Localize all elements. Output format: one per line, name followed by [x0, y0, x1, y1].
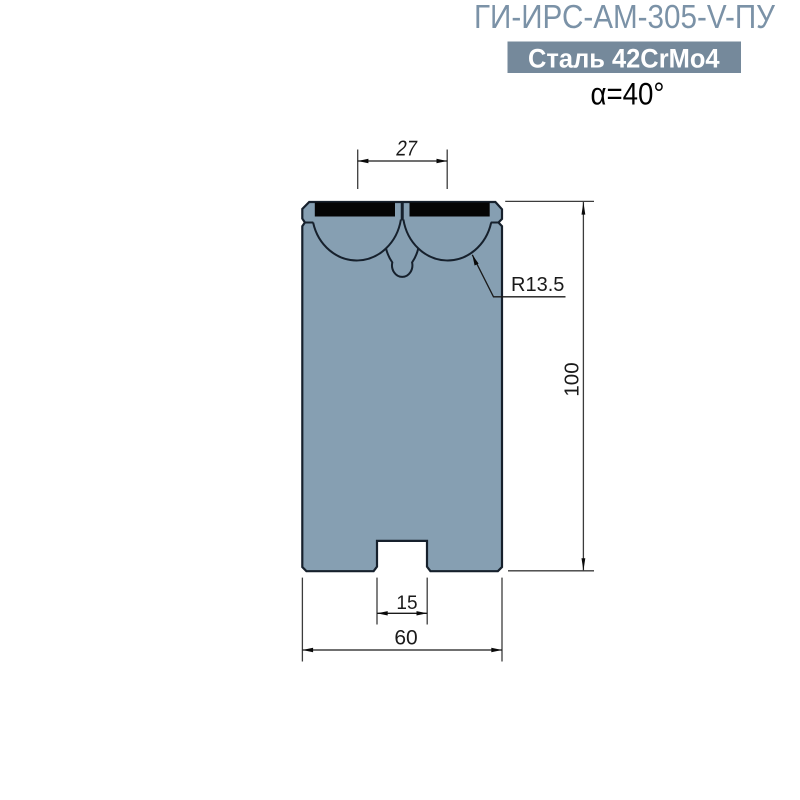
svg-text:100: 100 [560, 362, 583, 396]
svg-text:α=40°: α=40° [591, 76, 665, 112]
svg-text:27: 27 [394, 138, 419, 161]
svg-text:15: 15 [396, 593, 417, 614]
svg-text:Сталь 42CrMo4: Сталь 42CrMo4 [528, 43, 720, 73]
svg-text:R13.5: R13.5 [511, 274, 564, 296]
svg-text:ГИ-ИРС-АМ-305-V-ПУ: ГИ-ИРС-АМ-305-V-ПУ [474, 0, 776, 35]
svg-text:60: 60 [394, 627, 417, 650]
